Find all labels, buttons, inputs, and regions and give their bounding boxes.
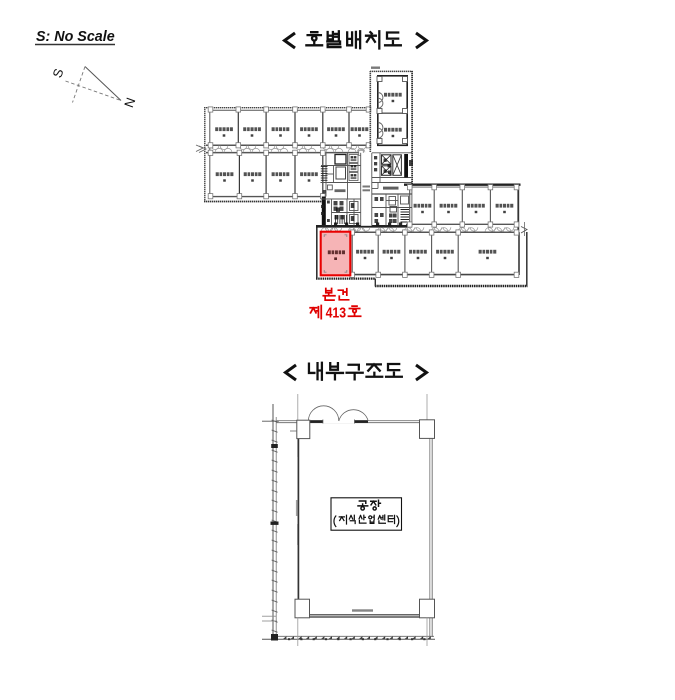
svg-text:N: N (121, 96, 138, 110)
svg-text:S: S (49, 66, 66, 80)
svg-text:413: 413 (326, 304, 347, 321)
svg-text:S: No Scale: S: No Scale (36, 29, 115, 45)
